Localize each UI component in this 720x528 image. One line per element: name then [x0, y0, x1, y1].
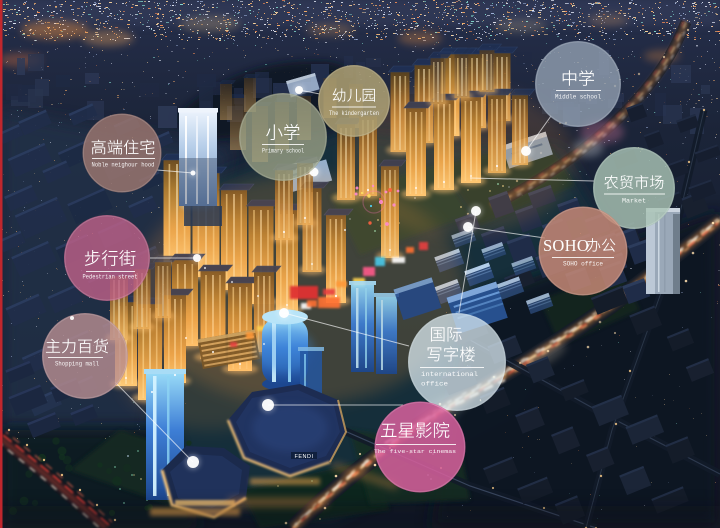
- svg-text:Middle school: Middle school: [555, 94, 601, 101]
- svg-text:Primary school: Primary school: [262, 148, 304, 155]
- svg-text:SOHO: SOHO: [543, 236, 589, 255]
- svg-text:FENDI: FENDI: [295, 454, 314, 460]
- svg-text:Market: Market: [622, 198, 646, 205]
- svg-text:SOHO office: SOHO office: [563, 261, 603, 268]
- svg-text:The five-star cinemas: The five-star cinemas: [374, 448, 457, 455]
- svg-text:international: international: [421, 371, 478, 378]
- svg-text:office: office: [421, 381, 448, 388]
- svg-text:Shopping mall: Shopping mall: [55, 361, 99, 368]
- svg-text:Pedestrian street: Pedestrian street: [83, 274, 138, 281]
- svg-text:Noble neighour hood: Noble neighour hood: [92, 162, 155, 169]
- svg-text:The kindergarten: The kindergarten: [329, 110, 379, 117]
